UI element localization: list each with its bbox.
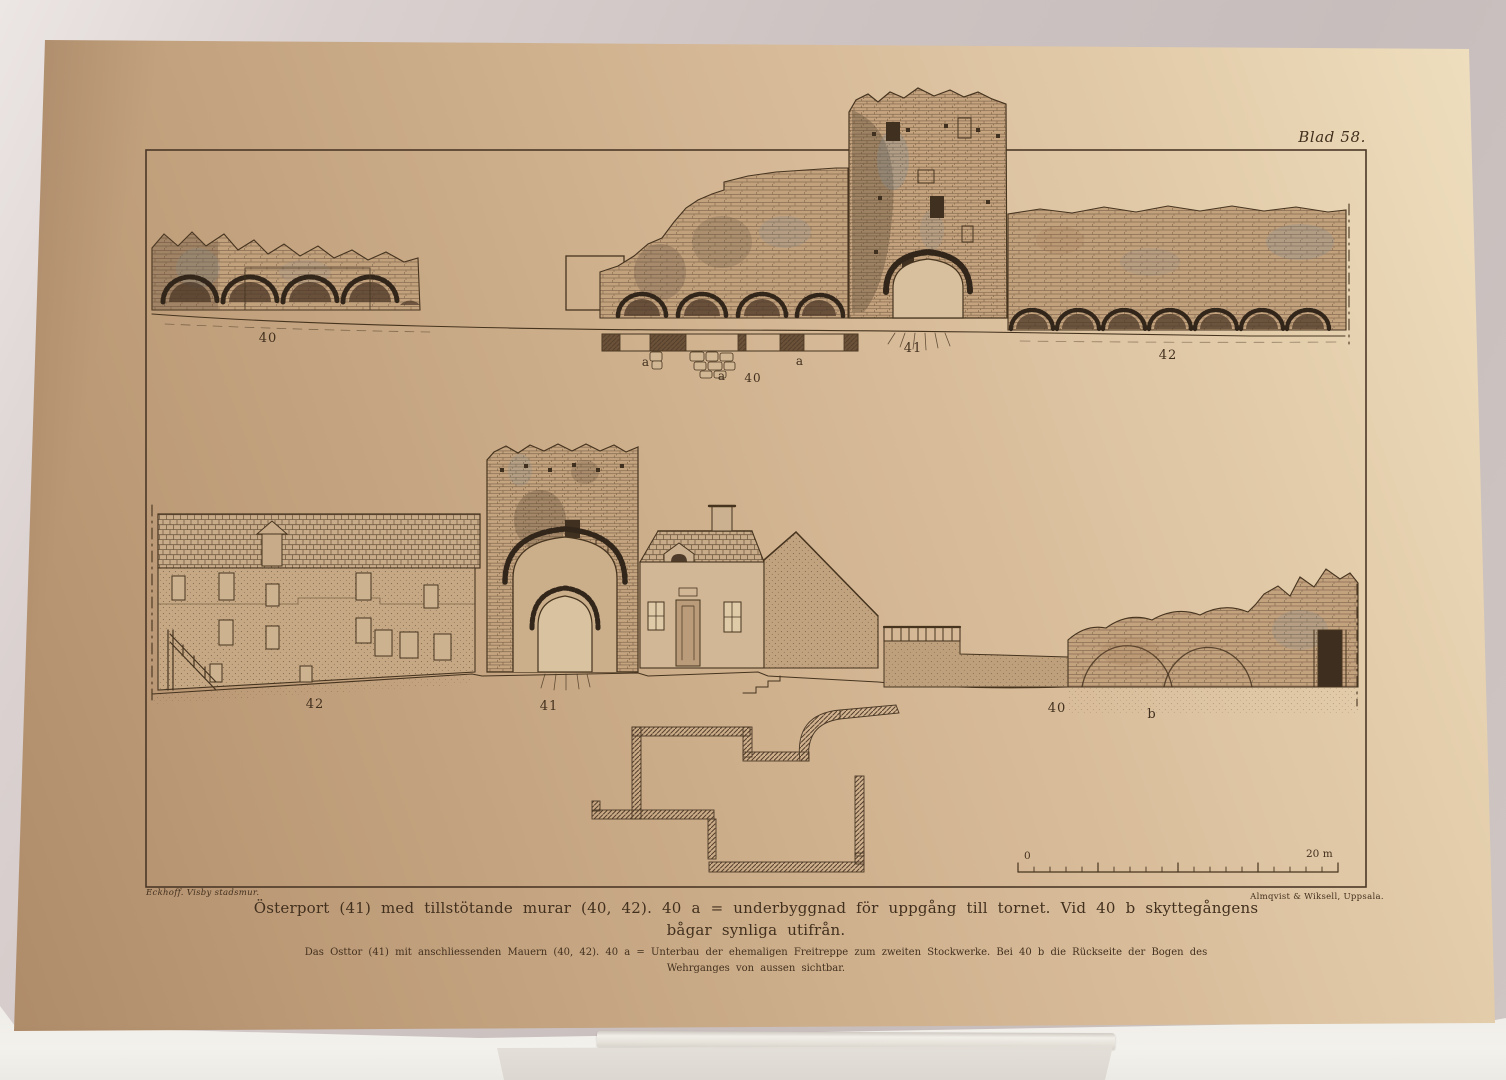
label-top-tower-41: 41 bbox=[904, 341, 923, 356]
label-detail-a-right: a bbox=[796, 354, 804, 368]
label-top-wall-42: 42 bbox=[1159, 348, 1178, 363]
credit-author: Eckhoff. Visby stadsmur. bbox=[146, 888, 259, 898]
sheet-number-label: Blad 58. bbox=[1166, 128, 1366, 146]
caption-swedish-line2: bågar synliga utifrån. bbox=[146, 921, 1366, 939]
caption-swedish-line1: Österport (41) med tillstötande murar (4… bbox=[146, 899, 1366, 917]
label-detail-40: 40 bbox=[744, 371, 761, 385]
label-top-wall-40: 40 bbox=[259, 331, 278, 346]
display-stand-base bbox=[497, 1046, 1113, 1080]
print-paper: Blad 58. Eckhoff. Visby stadsmur. Almqvi… bbox=[0, 0, 1506, 1080]
label-detail-a-left: a bbox=[642, 355, 650, 369]
label-bottom-b: b bbox=[1147, 707, 1156, 722]
label-bottom-tower-41: 41 bbox=[540, 699, 559, 714]
caption-german-line2: Wehrganges von aussen sichtbar. bbox=[146, 963, 1366, 974]
scale-zero-label: 0 bbox=[1024, 850, 1031, 862]
label-detail-a-mid: a bbox=[718, 369, 726, 383]
caption-german-line1: Das Osttor (41) mit anschliessenden Maue… bbox=[146, 947, 1366, 958]
scale-end-label: 20 m bbox=[1306, 848, 1333, 860]
label-bottom-wall-40: 40 bbox=[1048, 701, 1067, 716]
engraving-artwork bbox=[0, 0, 1506, 1080]
label-bottom-wall-42: 42 bbox=[306, 697, 325, 712]
